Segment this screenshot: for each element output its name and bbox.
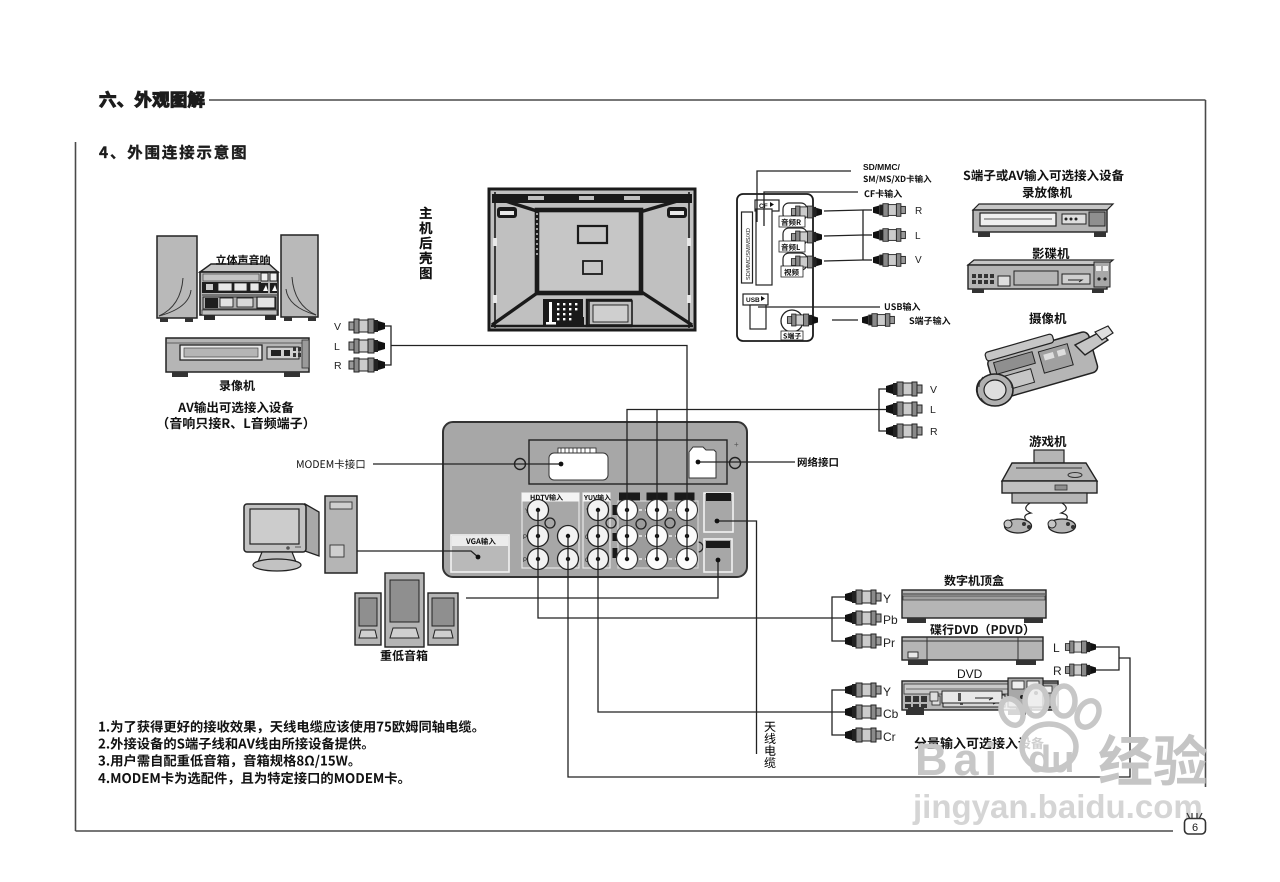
svg-text:Cb: Cb <box>883 707 899 721</box>
svg-text:V: V <box>930 384 937 396</box>
svg-text:+: + <box>734 440 739 449</box>
svg-text:Pb: Pb <box>883 613 898 627</box>
svg-text:jingyan.baidu.com: jingyan.baidu.com <box>912 788 1203 825</box>
svg-text:SD/MMC/: SD/MMC/ <box>863 162 900 172</box>
svg-text:L: L <box>1053 641 1060 655</box>
svg-text:Y: Y <box>883 685 891 699</box>
svg-text:L: L <box>915 231 921 242</box>
svg-text:du: du <box>1028 739 1074 781</box>
svg-text:R: R <box>930 426 938 438</box>
svg-text:SD/MMC/SM/MS/XD: SD/MMC/SM/MS/XD <box>746 228 752 280</box>
svg-text:R: R <box>915 206 922 217</box>
svg-text:Cr: Cr <box>883 730 896 744</box>
svg-text:L: L <box>930 404 936 416</box>
svg-text:USB: USB <box>746 297 760 304</box>
svg-text:R: R <box>1053 664 1062 678</box>
svg-text:L: L <box>334 341 340 353</box>
svg-text:Bai: Bai <box>915 734 1003 785</box>
svg-text:R: R <box>334 360 342 372</box>
svg-text:V: V <box>915 255 922 266</box>
svg-text:DVD: DVD <box>957 667 983 681</box>
svg-text:Pr: Pr <box>883 636 895 650</box>
svg-text:V: V <box>334 321 341 333</box>
svg-text:6: 6 <box>1192 822 1198 834</box>
svg-text:Y: Y <box>883 592 891 606</box>
